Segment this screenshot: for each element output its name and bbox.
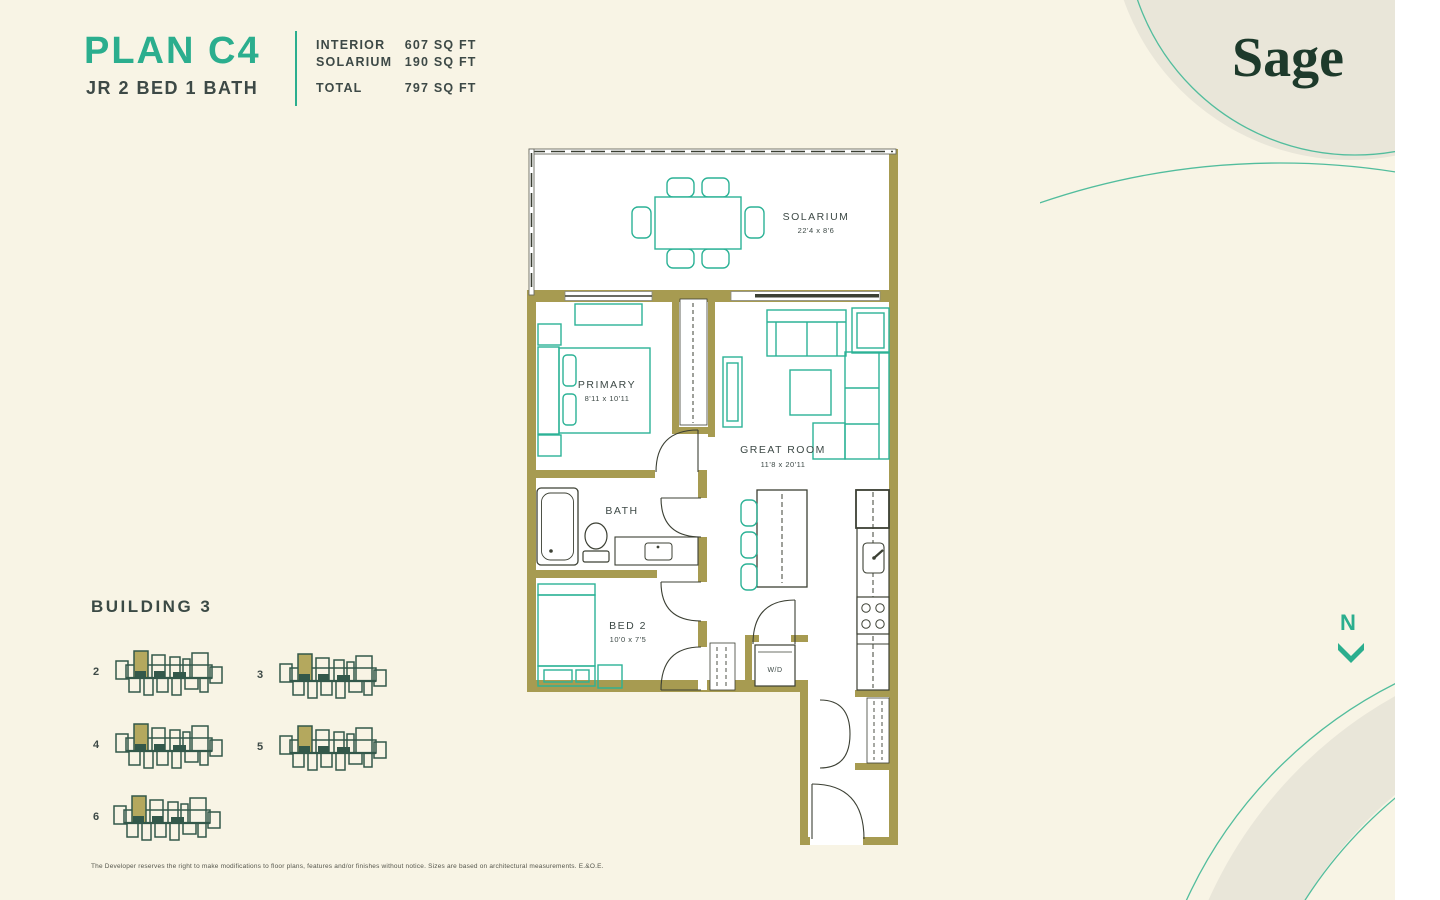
stat-label: INTERIOR	[316, 38, 400, 52]
stat-row-solarium: SOLARIUM 190 SQ FT	[316, 55, 477, 69]
building-number: 4	[93, 739, 99, 751]
room-label-great-room: GREAT ROOM	[740, 444, 826, 456]
building-diagram-floor-6	[112, 789, 222, 847]
corner-decoration-bottom-right	[1040, 640, 1395, 900]
building-diagram-floor-4	[114, 717, 224, 775]
stat-row-interior: INTERIOR 607 SQ FT	[316, 38, 477, 52]
stat-label: SOLARIUM	[316, 55, 400, 69]
building-diagram-floor-2	[114, 644, 224, 702]
page-title: PLAN C4	[84, 30, 261, 73]
stat-value: 190 SQ FT	[405, 55, 477, 69]
canvas: PLAN C4 JR 2 BED 1 BATH INTERIOR 607 SQ …	[0, 0, 1395, 900]
building-number: 2	[93, 666, 99, 678]
room-label-laundry: W/D	[767, 667, 782, 674]
building-number: 6	[93, 811, 99, 823]
plan-subtitle: JR 2 BED 1 BATH	[86, 78, 258, 99]
bath-sink	[645, 543, 672, 560]
building-number: 5	[257, 741, 263, 753]
north-arrow-icon	[1336, 641, 1366, 665]
brochure-page: PLAN C4 JR 2 BED 1 BATH INTERIOR 607 SQ …	[0, 0, 1440, 900]
room-label-bed2: BED 2	[609, 620, 647, 632]
room-dims-primary: 8'11 x 10'11	[585, 394, 630, 403]
room-label-solarium: SOLARIUM	[783, 211, 850, 223]
building-diagram-floor-5	[278, 719, 388, 777]
floor	[529, 149, 897, 845]
room-dims-bed2: 10'0 x 7'5	[610, 635, 647, 644]
room-label-primary: PRIMARY	[578, 379, 636, 391]
room-dims-great-room: 11'8 x 20'11	[761, 460, 806, 469]
building-diagram-floor-3	[278, 647, 388, 705]
room-label-bath: BATH	[605, 505, 638, 517]
room-dims-solarium: 22'4 x 8'6	[798, 226, 835, 235]
stat-label: TOTAL	[316, 81, 400, 95]
disclaimer-text: The Developer reserves the right to make…	[91, 863, 604, 870]
building-number: 3	[257, 669, 263, 681]
kitchen	[856, 490, 889, 690]
stat-row-total: TOTAL 797 SQ FT	[316, 81, 477, 95]
north-indicator: N	[1340, 610, 1356, 636]
buildings-section-title: BUILDING 3	[91, 597, 212, 617]
sliding-door	[755, 294, 879, 298]
floorplan: W/D	[527, 147, 898, 847]
toilet	[585, 523, 607, 549]
stove	[857, 597, 889, 634]
stat-value: 797 SQ FT	[405, 81, 477, 95]
brand-logo: Sage	[1218, 26, 1358, 90]
laundry-closet: W/D	[755, 645, 795, 686]
stat-value: 607 SQ FT	[405, 38, 477, 52]
header-divider	[295, 31, 297, 106]
